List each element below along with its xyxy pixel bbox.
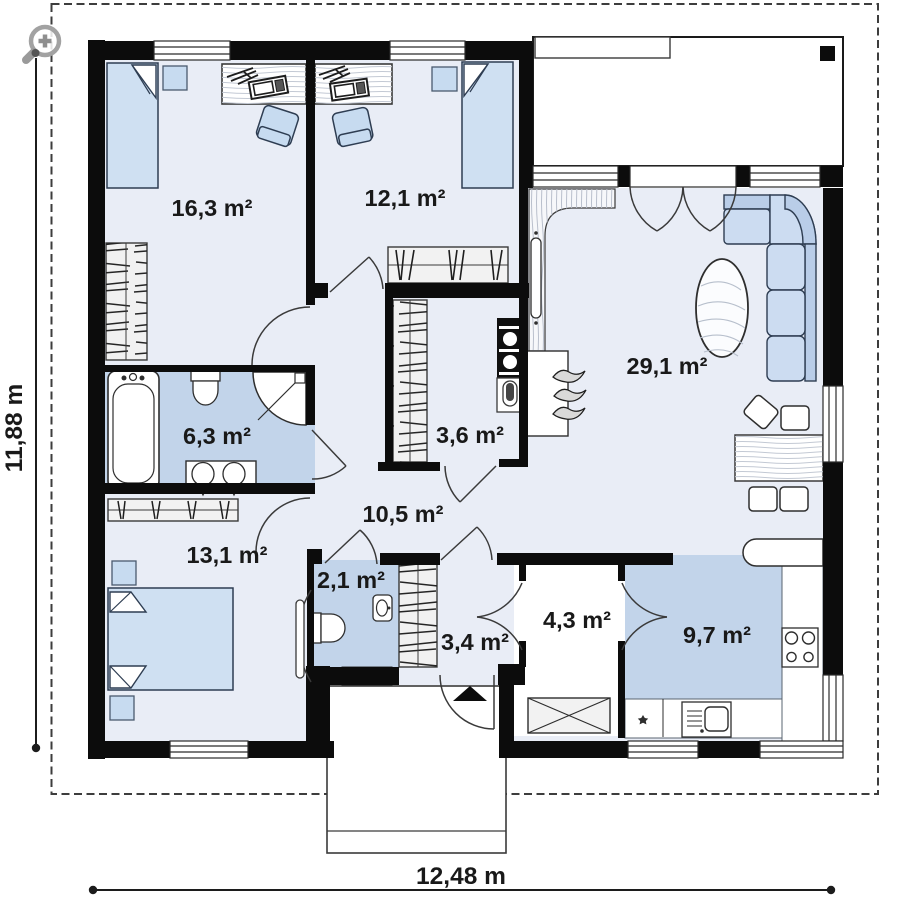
svg-text:4,3 m²: 4,3 m² (543, 607, 611, 633)
svg-text:16,3 m²: 16,3 m² (172, 195, 253, 221)
svg-text:29,1 m²: 29,1 m² (627, 353, 708, 379)
svg-text:11,88 m: 11,88 m (1, 384, 28, 473)
svg-text:10,5 m²: 10,5 m² (363, 501, 444, 527)
svg-text:9,7 m²: 9,7 m² (683, 622, 751, 648)
svg-text:3,6 m²: 3,6 m² (436, 422, 504, 448)
svg-text:6,3 m²: 6,3 m² (183, 423, 251, 449)
svg-text:12,48 m: 12,48 m (416, 863, 506, 890)
svg-text:12,1 m²: 12,1 m² (365, 185, 446, 211)
svg-text:3,4 m²: 3,4 m² (441, 629, 509, 655)
svg-text:2,1 m²: 2,1 m² (317, 567, 385, 593)
svg-text:13,1 m²: 13,1 m² (187, 542, 268, 568)
